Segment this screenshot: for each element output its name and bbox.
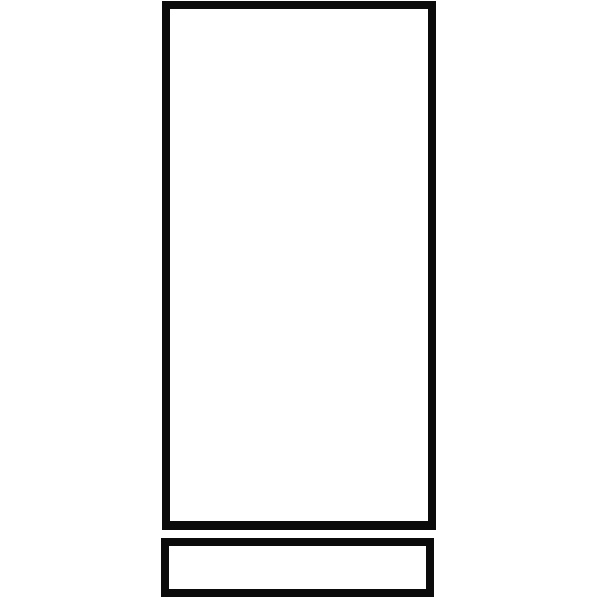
small-rectangle-outline bbox=[161, 538, 434, 597]
drawing-canvas bbox=[0, 0, 600, 600]
large-rectangle-outline bbox=[162, 1, 436, 530]
